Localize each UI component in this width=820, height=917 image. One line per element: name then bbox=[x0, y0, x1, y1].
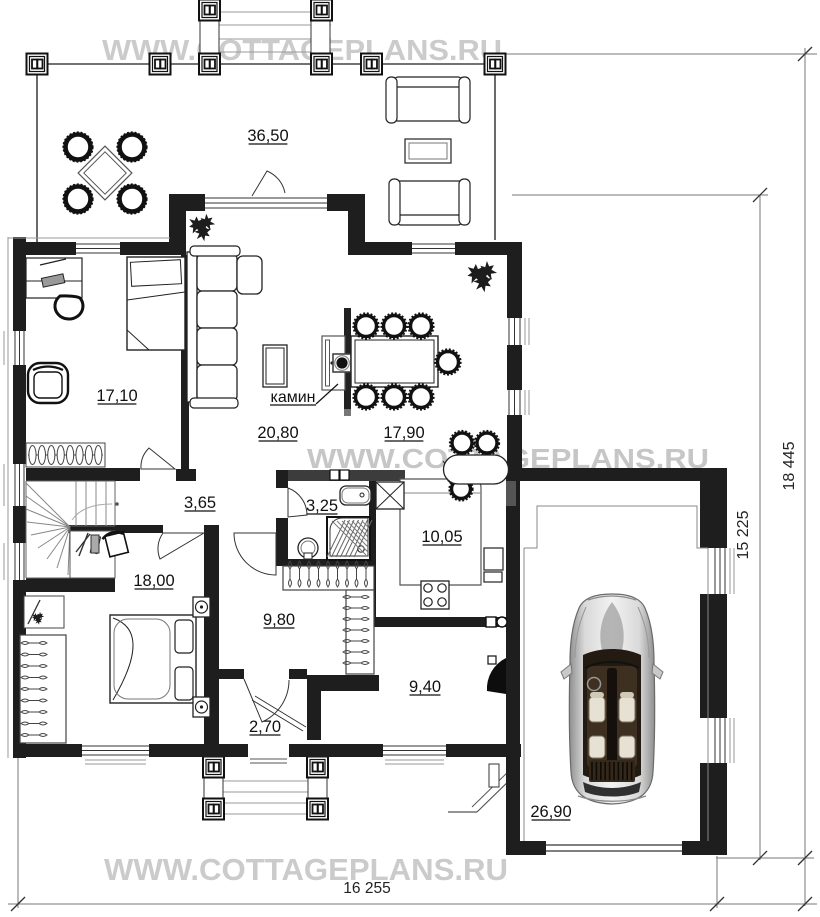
svg-text:36,50: 36,50 bbox=[247, 127, 288, 145]
svg-text:10,05: 10,05 bbox=[421, 528, 462, 546]
svg-text:9,40: 9,40 bbox=[409, 678, 441, 696]
svg-text:16 255: 16 255 bbox=[343, 880, 390, 897]
svg-text:20,80: 20,80 bbox=[257, 424, 298, 442]
svg-text:15 225: 15 225 bbox=[735, 510, 752, 559]
svg-text:камин: камин bbox=[270, 389, 315, 406]
svg-text:WWW.COTTAGEPLANS.RU: WWW.COTTAGEPLANS.RU bbox=[104, 852, 508, 887]
svg-text:3,65: 3,65 bbox=[184, 494, 216, 512]
svg-text:17,10: 17,10 bbox=[96, 387, 137, 405]
svg-text:17,90: 17,90 bbox=[383, 424, 424, 442]
svg-text:18 445: 18 445 bbox=[781, 441, 798, 490]
svg-text:2,70: 2,70 bbox=[249, 718, 281, 736]
svg-text:18,00: 18,00 bbox=[133, 572, 174, 590]
svg-text:3,25: 3,25 bbox=[306, 497, 338, 515]
svg-text:9,80: 9,80 bbox=[263, 611, 295, 629]
svg-text:26,90: 26,90 bbox=[530, 803, 571, 821]
